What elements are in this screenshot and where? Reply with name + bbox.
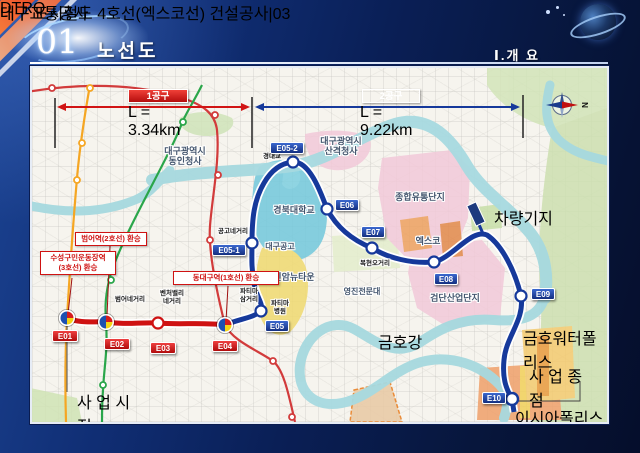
orange-area-exco (400, 216, 432, 252)
project-end-banner: 사 업 종 점 (529, 363, 593, 411)
transfer-note-beomeo: 범어역(2호선) 환승 (75, 232, 147, 246)
compass-north-label: N (580, 102, 589, 108)
arrowhead (241, 103, 250, 111)
station-badge-e01: E01 (52, 330, 78, 342)
dongdaegu-leader (226, 286, 228, 321)
line2-station (100, 382, 106, 388)
transfer-station-e04 (216, 316, 233, 333)
station-badge-e06: E06 (335, 199, 359, 211)
road-label-line: 파티마 (240, 288, 258, 296)
area-label-line: 대구광역시 (320, 136, 361, 146)
section2-length: L = 9.22km (360, 104, 422, 140)
line1-station (49, 85, 55, 91)
station-marker-e07 (367, 243, 378, 254)
road-label-fatima-sam: 파티마 삼거리 (240, 288, 258, 304)
station-badge-e03: E03 (150, 342, 176, 354)
station-marker-e05 (256, 306, 267, 317)
area-label-knu: 경북대학교 (273, 205, 314, 215)
road-label-gyeongdae-bridge: 경대교 (263, 153, 281, 161)
area-label-sangyeok: 대구광역시 산격청사 (320, 136, 361, 157)
station-badge-e07: E07 (361, 226, 385, 238)
line3-station (87, 85, 93, 91)
line1-station (212, 112, 218, 118)
area-label-yeongjin: 영진전문대 (344, 287, 381, 296)
transfer-note-line: (3호선) 환승 (43, 263, 113, 273)
route-map: N 1공구 L = 3.34km 2공구 L = 9.22km 대구광역시 동인… (30, 66, 609, 424)
globe-dot (556, 6, 559, 9)
section2-banner: 2공구 (362, 89, 420, 103)
header-underline (30, 62, 608, 64)
footer-doc-info: 대구 도시철도 4호선(엑스코선) 건설공사|03 (0, 0, 290, 24)
line3-station (74, 177, 80, 183)
station-badge-e04: E04 (212, 340, 238, 352)
road-label-line: 벤처밸리 (160, 290, 184, 298)
road-label-line: 병원 (271, 308, 289, 316)
line1-station (215, 172, 221, 178)
area-label-dongin: 대구광역시 동인청사 (164, 146, 205, 167)
area-label-line: 산격청사 (320, 146, 361, 156)
transfer-station-e02 (97, 313, 114, 330)
station-badge-e05-1: E05-1 (212, 244, 246, 256)
area-label-exco: 엑스코 (416, 236, 441, 246)
green-area-southwest (32, 388, 82, 422)
road-label-line: 파티마 (271, 300, 289, 308)
station-marker-e05-1 (247, 238, 258, 249)
transfer-note-suseong: 수성구민운동장역 (3호선) 환승 (40, 251, 116, 275)
footer-doc-title: 대구 도시철도 4호선(엑스코선) 건설공사 (0, 6, 268, 23)
station-badge-e05-2: E05-2 (270, 142, 304, 154)
presentation-slide: 01 노선도 Ⅰ.개 요 (0, 0, 640, 453)
road-label-fatima-hospital: 파티마 병원 (271, 300, 289, 316)
station-badge-e02: E02 (104, 338, 130, 350)
arrowhead (255, 103, 264, 111)
depot-label: 차량기지 (494, 205, 553, 229)
river-char: 금 (378, 335, 393, 352)
road-label-gonggo: 공고네거리 (218, 228, 248, 236)
line3-station (79, 140, 85, 146)
station-badge-e10: E10 (482, 392, 506, 404)
line1-station (289, 414, 295, 420)
globe-dot (546, 10, 550, 14)
station-marker-e06 (322, 204, 333, 215)
station-badge-e08: E08 (434, 273, 458, 285)
line1-station (270, 358, 276, 364)
slide-number: 01 (36, 22, 78, 61)
area-label-line: 동인청사 (164, 156, 205, 166)
transfer-station-e01 (58, 309, 75, 326)
station-badge-e05: E05 (265, 320, 289, 332)
transfer-note-dongdaegu: 동대구역(1호선) 환승 (173, 271, 279, 285)
globe-icon (572, 3, 620, 45)
project-start-banner: 사 업 시 점 (77, 389, 145, 422)
page-title: 노선도 (97, 36, 158, 63)
transfer-note-line: 수성구민운동장역 (43, 253, 113, 263)
station-marker-e09 (516, 291, 527, 302)
road-label-line: 네거리 (160, 298, 184, 306)
road-label-line: 삼거리 (240, 296, 258, 304)
area-label-distribution: 종합유통단지 (395, 192, 445, 202)
area-label-daegu-tech-hs: 대구공고 (265, 242, 294, 251)
station-marker-e03 (153, 318, 164, 329)
station-marker-e10 (506, 393, 518, 405)
section1-banner: 1공구 (128, 89, 188, 103)
line1-station (207, 237, 213, 243)
globe-dot (563, 14, 565, 16)
section1-length: L = 3.34km (128, 104, 188, 140)
footer-page-number: 03 (273, 6, 291, 23)
station-marker-e05-2 (288, 157, 299, 168)
station-badge-e09: E09 (531, 288, 555, 300)
road-label-beomeo: 범어네거리 (115, 296, 145, 304)
river-name-label: 금호강 (378, 329, 422, 353)
station-marker-e08 (429, 257, 440, 268)
road-label-bokhyeon: 복현오거리 (360, 260, 390, 268)
area-label-sinam: 신암뉴타운 (273, 272, 314, 282)
river-char: 호 (393, 335, 408, 352)
area-label-line: 대구광역시 (164, 146, 205, 156)
river-char: 강 (407, 335, 422, 352)
arrowhead (57, 103, 66, 111)
road-label-venture: 벤처밸리 네거리 (160, 290, 184, 306)
area-label-geomdan: 검단산업단지 (430, 293, 480, 303)
